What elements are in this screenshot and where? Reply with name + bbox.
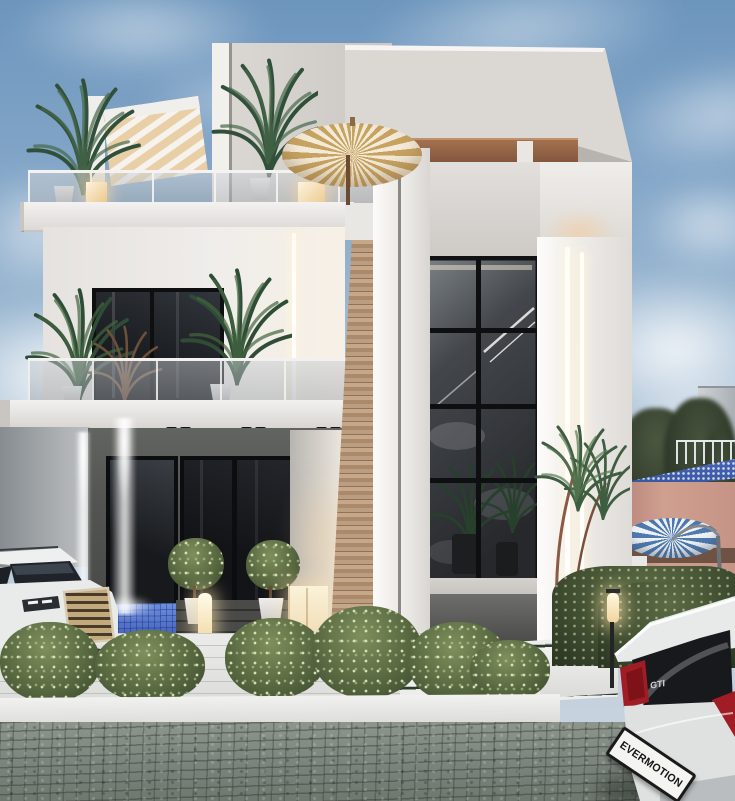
gold-parasol-finial xyxy=(350,117,355,126)
entry-door-divider xyxy=(232,458,237,620)
flowering-bush xyxy=(95,630,205,702)
pool-deck-railing xyxy=(676,440,735,464)
roof-beam-support xyxy=(517,141,533,164)
palm-fronds xyxy=(536,425,630,519)
terrace-cube-lamp xyxy=(298,182,325,203)
window-mullion-vertical xyxy=(476,260,481,582)
interior-plant-pot xyxy=(452,534,478,574)
balcony-slab xyxy=(0,400,348,430)
terrace-cube-lamp xyxy=(86,182,107,203)
flowering-bush xyxy=(0,622,100,702)
flowering-bush xyxy=(312,606,422,698)
topiary-tree-foliage xyxy=(246,540,300,590)
balcony-glass-railing xyxy=(28,358,348,405)
window-mullion-horizontal xyxy=(425,404,537,409)
flowering-bush xyxy=(470,640,550,700)
window-mullion-horizontal xyxy=(425,328,537,333)
villa-render-scene: GTI EVERMOTION xyxy=(0,0,735,801)
taillight-left-inner xyxy=(626,667,645,701)
gti-badge-text: GTI xyxy=(649,678,666,690)
entry-door-reflection xyxy=(255,460,258,618)
gold-parasol-pole xyxy=(346,155,350,205)
center-fin-right xyxy=(401,148,430,660)
parasol-arm-curve xyxy=(672,526,719,540)
balcony-slab-corner xyxy=(0,400,10,428)
gold-parasol-canopy xyxy=(282,123,422,187)
fascia-above-window xyxy=(424,162,542,259)
flowering-bush xyxy=(225,618,325,698)
topiary-tree-foliage xyxy=(168,538,224,590)
palm-fronds-light xyxy=(542,431,610,501)
center-fin-left xyxy=(373,148,399,660)
